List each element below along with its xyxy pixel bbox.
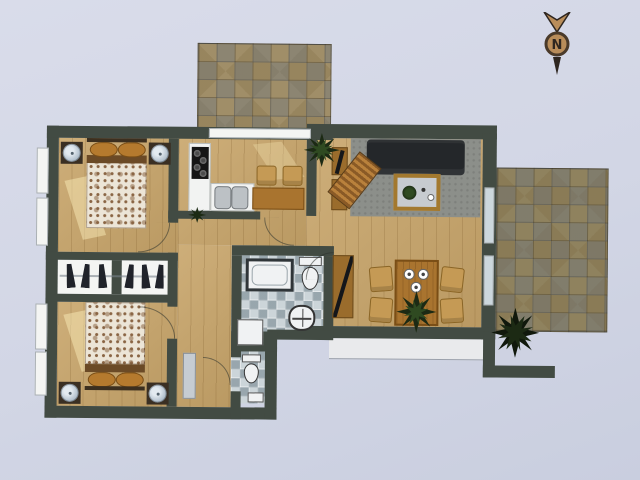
- compass-tail: [544, 12, 570, 32]
- wall-segment: [232, 245, 334, 256]
- washbasin: [288, 305, 315, 331]
- compass-spike: [553, 57, 561, 75]
- terrace-strip: [329, 338, 483, 360]
- sofa: [367, 139, 465, 175]
- dining-chair: [368, 297, 393, 324]
- wall-segment: [44, 406, 276, 420]
- plate: [418, 269, 429, 280]
- plate: [404, 269, 415, 280]
- cooktop: [192, 147, 209, 179]
- lamp: [63, 144, 81, 162]
- dining-chair: [440, 297, 464, 323]
- table-dish: [427, 194, 434, 201]
- bed-headboard: [85, 386, 145, 391]
- kitchen-plant: [188, 207, 206, 223]
- wc-basin: [248, 392, 264, 402]
- floor-plan-photo: N: [0, 0, 640, 480]
- washer-box: [237, 319, 263, 345]
- pillow: [88, 372, 116, 387]
- living-corner-plant: [304, 133, 340, 167]
- hall-cabinet: [183, 353, 196, 399]
- plant-leaves: [188, 207, 206, 223]
- north-compass-icon: N: [542, 12, 572, 76]
- wall-segment: [167, 253, 177, 307]
- sink-basin: [231, 186, 248, 209]
- window: [35, 304, 47, 350]
- table-dish: [421, 188, 425, 192]
- bathtub: [246, 258, 294, 291]
- dining-chair: [369, 266, 394, 293]
- bed-bottom: [85, 302, 146, 365]
- burner: [200, 157, 207, 164]
- wall-segment: [264, 348, 277, 420]
- pillow: [90, 142, 118, 157]
- patio-top: [197, 43, 332, 130]
- pillow: [118, 142, 146, 157]
- burner: [194, 150, 201, 157]
- window: [36, 198, 48, 246]
- kitchen-window: [209, 128, 311, 139]
- burner: [200, 170, 207, 177]
- living-window: [483, 255, 493, 305]
- window: [35, 352, 47, 396]
- sideboard-object: [332, 255, 354, 318]
- wall-segment: [168, 211, 260, 220]
- window: [36, 148, 48, 194]
- bed-top: [86, 162, 147, 229]
- wall-segment: [230, 391, 240, 419]
- burner: [194, 164, 201, 171]
- lamp: [151, 145, 169, 163]
- wc-toilet-tank: [242, 354, 261, 362]
- coffee-table: [393, 174, 440, 211]
- lamp: [149, 385, 167, 403]
- sideboard: [332, 255, 354, 318]
- kitchen-table: [252, 187, 304, 209]
- living-window: [484, 187, 494, 243]
- bed-fold-band: [85, 364, 145, 373]
- entry-wall-horizontal: [483, 365, 555, 378]
- sink-basin: [214, 186, 231, 209]
- kitchen-chair: [282, 166, 302, 186]
- pillow: [116, 372, 144, 387]
- lamp: [61, 384, 79, 402]
- compass-letter: N: [552, 38, 563, 53]
- bathtub-inner: [252, 264, 288, 285]
- entry-bush: [491, 307, 539, 357]
- dining-chair: [439, 266, 465, 293]
- kitchen-chair: [256, 165, 276, 185]
- dining-plant: [396, 291, 436, 333]
- table-plant: [402, 186, 416, 200]
- basin-cross: [293, 318, 311, 320]
